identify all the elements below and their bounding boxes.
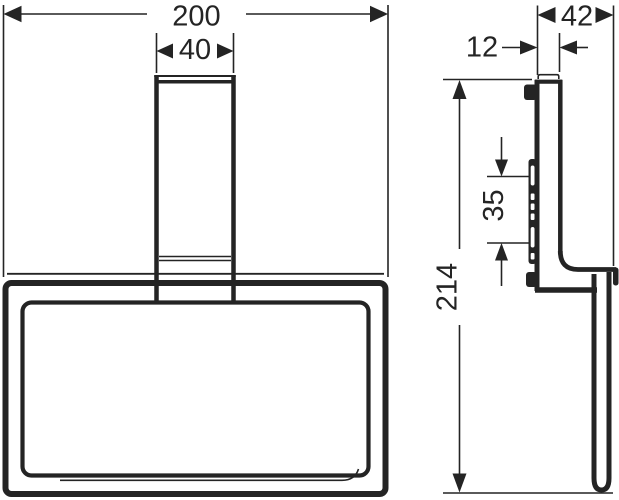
technical-drawing: 200 40 42 12 xyxy=(0,0,619,500)
dimension-label-overall-height: 214 xyxy=(432,263,464,311)
arrowhead-left-icon xyxy=(157,44,174,59)
mount-rail-hole xyxy=(531,214,535,221)
arm-tip-lip xyxy=(613,268,619,286)
arrowhead-right-icon xyxy=(596,7,614,23)
plate-cap-line xyxy=(538,75,559,79)
arrowhead-right-icon xyxy=(217,44,234,59)
mount-rail-hole xyxy=(531,194,535,201)
arrowhead-right-icon xyxy=(520,41,538,55)
dimension-label-hole-spacing: 35 xyxy=(478,189,510,221)
ring-bar-profile xyxy=(594,272,609,490)
side-view: 42 12 214 35 xyxy=(432,1,619,494)
mount-rail-slot xyxy=(531,227,535,248)
ring-inner-opening xyxy=(23,303,369,476)
dimension-label-post-width: 40 xyxy=(179,34,211,66)
arrowhead-right-icon xyxy=(370,6,388,22)
mount-rail-hole xyxy=(531,253,535,260)
mount-rail-hole xyxy=(531,204,535,211)
arrowhead-up-icon xyxy=(495,243,508,261)
arrowhead-left-icon xyxy=(538,7,556,23)
dimension-label-plate-depth: 12 xyxy=(466,32,498,64)
drawing-canvas: 200 40 42 12 xyxy=(0,0,619,500)
arrowhead-left-icon xyxy=(4,6,22,22)
dimension-label-overall-width: 200 xyxy=(172,1,220,33)
arrowhead-up-icon xyxy=(453,80,467,99)
arrowhead-down-icon xyxy=(453,474,467,493)
arrowhead-down-icon xyxy=(495,160,508,177)
mount-rail-slot xyxy=(531,166,535,186)
dimension-label-overall-depth: 42 xyxy=(561,1,593,33)
arrowhead-left-icon xyxy=(560,41,578,55)
ring-outer-outline xyxy=(6,283,386,494)
arm-top-profile xyxy=(560,251,616,270)
front-view: 200 40 xyxy=(4,1,389,495)
